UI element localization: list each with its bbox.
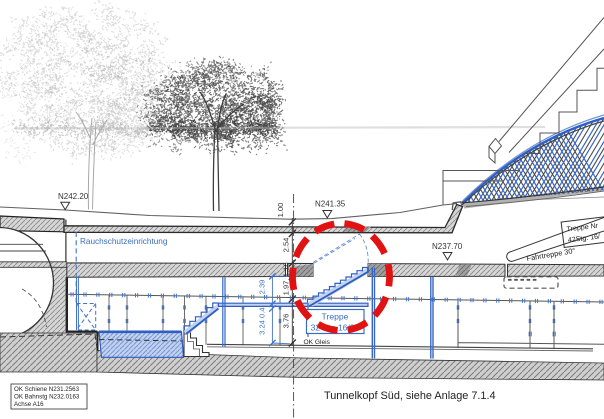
svg-text:N242.20: N242.20 bbox=[58, 192, 89, 201]
svg-text:0.4: 0.4 bbox=[258, 307, 267, 318]
svg-text:N241.35: N241.35 bbox=[315, 200, 346, 209]
svg-text:2.54: 2.54 bbox=[281, 238, 290, 253]
svg-text:Rauchschutzeinrichtung: Rauchschutzeinrichtung bbox=[80, 237, 168, 246]
svg-text:Tunnelkopf Süd, siehe Anlage 7: Tunnelkopf Süd, siehe Anlage 7.1.4 bbox=[324, 390, 496, 402]
svg-text:1.97: 1.97 bbox=[281, 281, 290, 296]
svg-text:1.16: 1.16 bbox=[281, 262, 290, 277]
svg-text:OK Bahnstg N232.0163: OK Bahnstg N232.0163 bbox=[14, 394, 80, 401]
svg-text:Achse A16: Achse A16 bbox=[14, 401, 44, 408]
svg-text:Treppe: Treppe bbox=[322, 312, 349, 322]
svg-text:3.24: 3.24 bbox=[258, 320, 267, 335]
svg-text:OK Schiene N231.2563: OK Schiene N231.2563 bbox=[14, 386, 80, 393]
svg-text:OK Gleis: OK Gleis bbox=[304, 339, 331, 346]
svg-text:3.76: 3.76 bbox=[281, 314, 290, 329]
svg-text:1.00: 1.00 bbox=[276, 203, 285, 218]
svg-text:N237.70: N237.70 bbox=[432, 242, 463, 251]
svg-text:2.39: 2.39 bbox=[258, 280, 267, 295]
